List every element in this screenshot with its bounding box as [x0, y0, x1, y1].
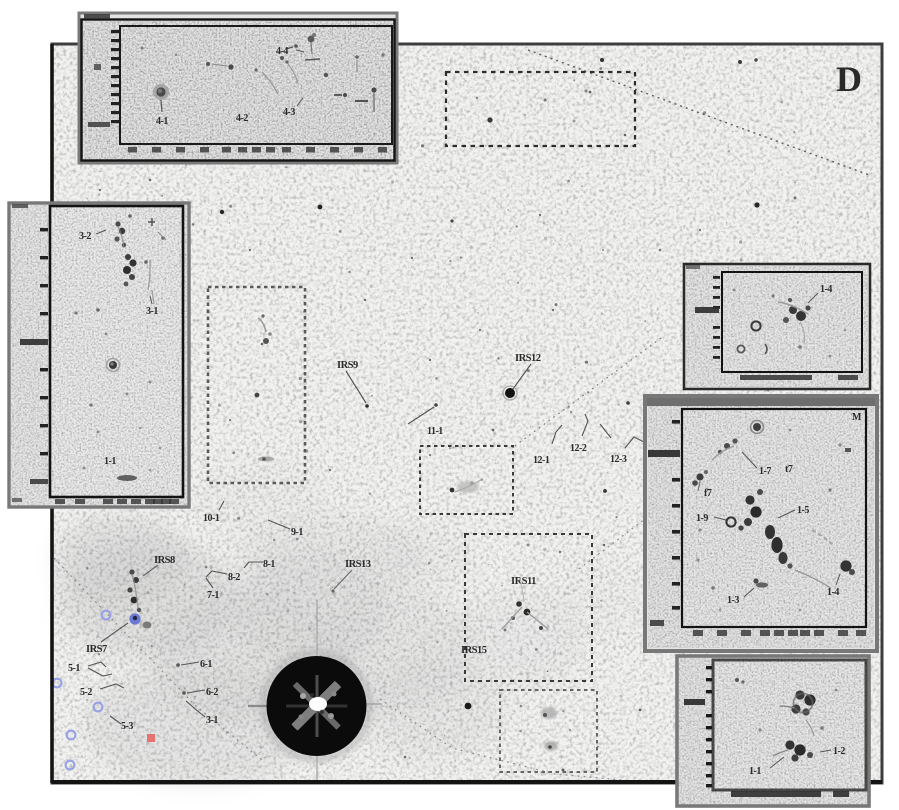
svg-text:6-2: 6-2 [206, 687, 218, 698]
svg-text:5-2: 5-2 [80, 687, 92, 698]
svg-text:1-5: 1-5 [797, 505, 809, 516]
svg-text:1-9: 1-9 [696, 513, 708, 524]
svg-text:1-7: 1-7 [759, 466, 771, 477]
svg-text:4-2: 4-2 [236, 113, 248, 124]
svg-text:3-2: 3-2 [79, 231, 91, 242]
svg-text:12-3: 12-3 [610, 454, 627, 465]
svg-text:4-1: 4-1 [156, 116, 168, 127]
svg-text:IRS9: IRS9 [337, 360, 358, 371]
svg-text:D: D [836, 59, 862, 99]
svg-text:12-1: 12-1 [533, 455, 550, 466]
svg-text:8-1: 8-1 [263, 559, 275, 570]
svg-text:IRS12: IRS12 [515, 353, 541, 364]
svg-text:10-1: 10-1 [203, 513, 220, 524]
svg-text:3-1: 3-1 [146, 306, 158, 317]
svg-text:5-3: 5-3 [121, 721, 133, 732]
svg-text:6-1: 6-1 [200, 659, 212, 670]
svg-text:IRS11: IRS11 [511, 576, 536, 587]
svg-text:1-4: 1-4 [827, 587, 839, 598]
svg-text:5-1: 5-1 [68, 663, 80, 674]
svg-text:4-4: 4-4 [276, 46, 288, 57]
svg-text:IRS15: IRS15 [461, 645, 487, 656]
svg-text:1-1: 1-1 [104, 456, 116, 467]
svg-text:IRS8: IRS8 [154, 555, 175, 566]
svg-text:8-2: 8-2 [228, 572, 240, 583]
svg-text:1-2: 1-2 [833, 746, 845, 757]
svg-text:IRS7: IRS7 [86, 644, 107, 655]
svg-text:1-3: 1-3 [727, 595, 739, 606]
svg-text:7-1: 7-1 [207, 590, 219, 601]
svg-text:4-3: 4-3 [283, 107, 295, 118]
svg-text:11-1: 11-1 [427, 426, 443, 437]
svg-text:1-1: 1-1 [749, 766, 761, 777]
svg-text:1-4: 1-4 [820, 284, 832, 295]
svg-text:IRS13: IRS13 [345, 559, 371, 570]
svg-text:f7: f7 [704, 488, 712, 499]
svg-text:12-2: 12-2 [570, 443, 587, 454]
svg-text:M: M [852, 412, 862, 423]
svg-text:t7: t7 [785, 464, 793, 475]
svg-text:9-1: 9-1 [291, 527, 303, 538]
svg-text:3-1: 3-1 [206, 715, 218, 726]
